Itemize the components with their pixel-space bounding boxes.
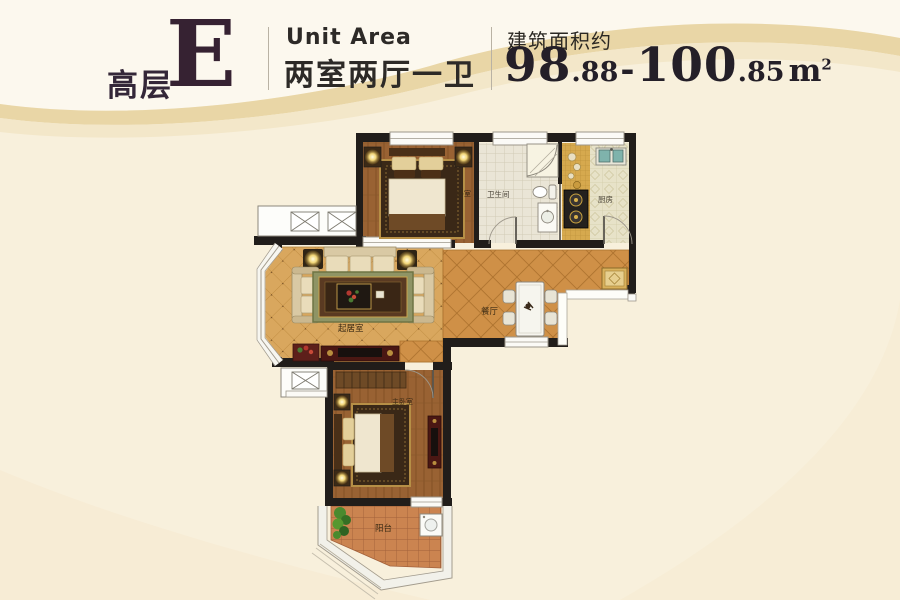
label-dining-room: 餐厅 bbox=[481, 307, 499, 317]
dining-window bbox=[505, 337, 548, 347]
balcony-door bbox=[411, 497, 442, 507]
master-tv-cabinet bbox=[428, 416, 441, 468]
header-divider-1 bbox=[268, 27, 269, 90]
label-bedroom: 卧室 bbox=[457, 189, 471, 198]
area-high-dec: .85 bbox=[738, 57, 785, 88]
ac-platform-top bbox=[258, 206, 356, 236]
stove bbox=[564, 190, 588, 228]
bathroom-window bbox=[493, 132, 547, 145]
vanity-sink bbox=[538, 203, 557, 232]
entry-step-wall bbox=[558, 290, 628, 345]
label-bathroom: 卫生间 bbox=[487, 189, 510, 199]
tier-label: 高层 bbox=[107, 60, 173, 105]
label-living-room: 起居室 bbox=[338, 323, 364, 334]
area-high-int: 100 bbox=[637, 38, 738, 93]
header: 高层 E Unit Area 两室两厅一卫 建筑面积约 98.88-100.85… bbox=[0, 0, 900, 110]
tv-cabinet bbox=[293, 344, 399, 361]
area-unit-m: m bbox=[789, 53, 822, 89]
entry-doormat bbox=[602, 268, 627, 289]
kitchen-sink bbox=[596, 148, 626, 165]
entry-door bbox=[628, 294, 636, 301]
area-low-dec: .88 bbox=[571, 57, 618, 88]
label-kitchen: 厨房 bbox=[598, 194, 613, 204]
header-divider-2 bbox=[491, 27, 492, 90]
ac-platform-left bbox=[281, 368, 327, 397]
unit-layout-text: 两室两厅一卫 bbox=[284, 50, 476, 94]
washing-machine bbox=[420, 514, 442, 536]
label-master-bedroom: 主卧室 bbox=[392, 397, 413, 406]
floorplan-ad-page: { "header": { "tier_label": "高层", "unit_… bbox=[0, 0, 900, 600]
area-unit: m2 bbox=[789, 53, 832, 89]
bedroom-furniture bbox=[364, 147, 472, 238]
dining-table bbox=[516, 282, 544, 336]
wardrobe bbox=[336, 372, 406, 388]
area-separator: - bbox=[620, 50, 634, 90]
unit-letter: E bbox=[166, 8, 236, 100]
label-balcony: 阳台 bbox=[375, 523, 392, 534]
unit-area-title: Unit Area bbox=[286, 25, 412, 50]
kitchen-window bbox=[576, 132, 624, 145]
area-unit-sup: 2 bbox=[821, 56, 831, 74]
area-value: 98.88-100.85m2 bbox=[504, 38, 832, 93]
bedroom-window bbox=[390, 132, 453, 145]
shower bbox=[527, 144, 558, 177]
floorplan: 卧室 卫生间 厨房 起居室 餐厅 主卧室 阳台 bbox=[250, 110, 670, 600]
area-low-int: 98 bbox=[504, 38, 571, 93]
